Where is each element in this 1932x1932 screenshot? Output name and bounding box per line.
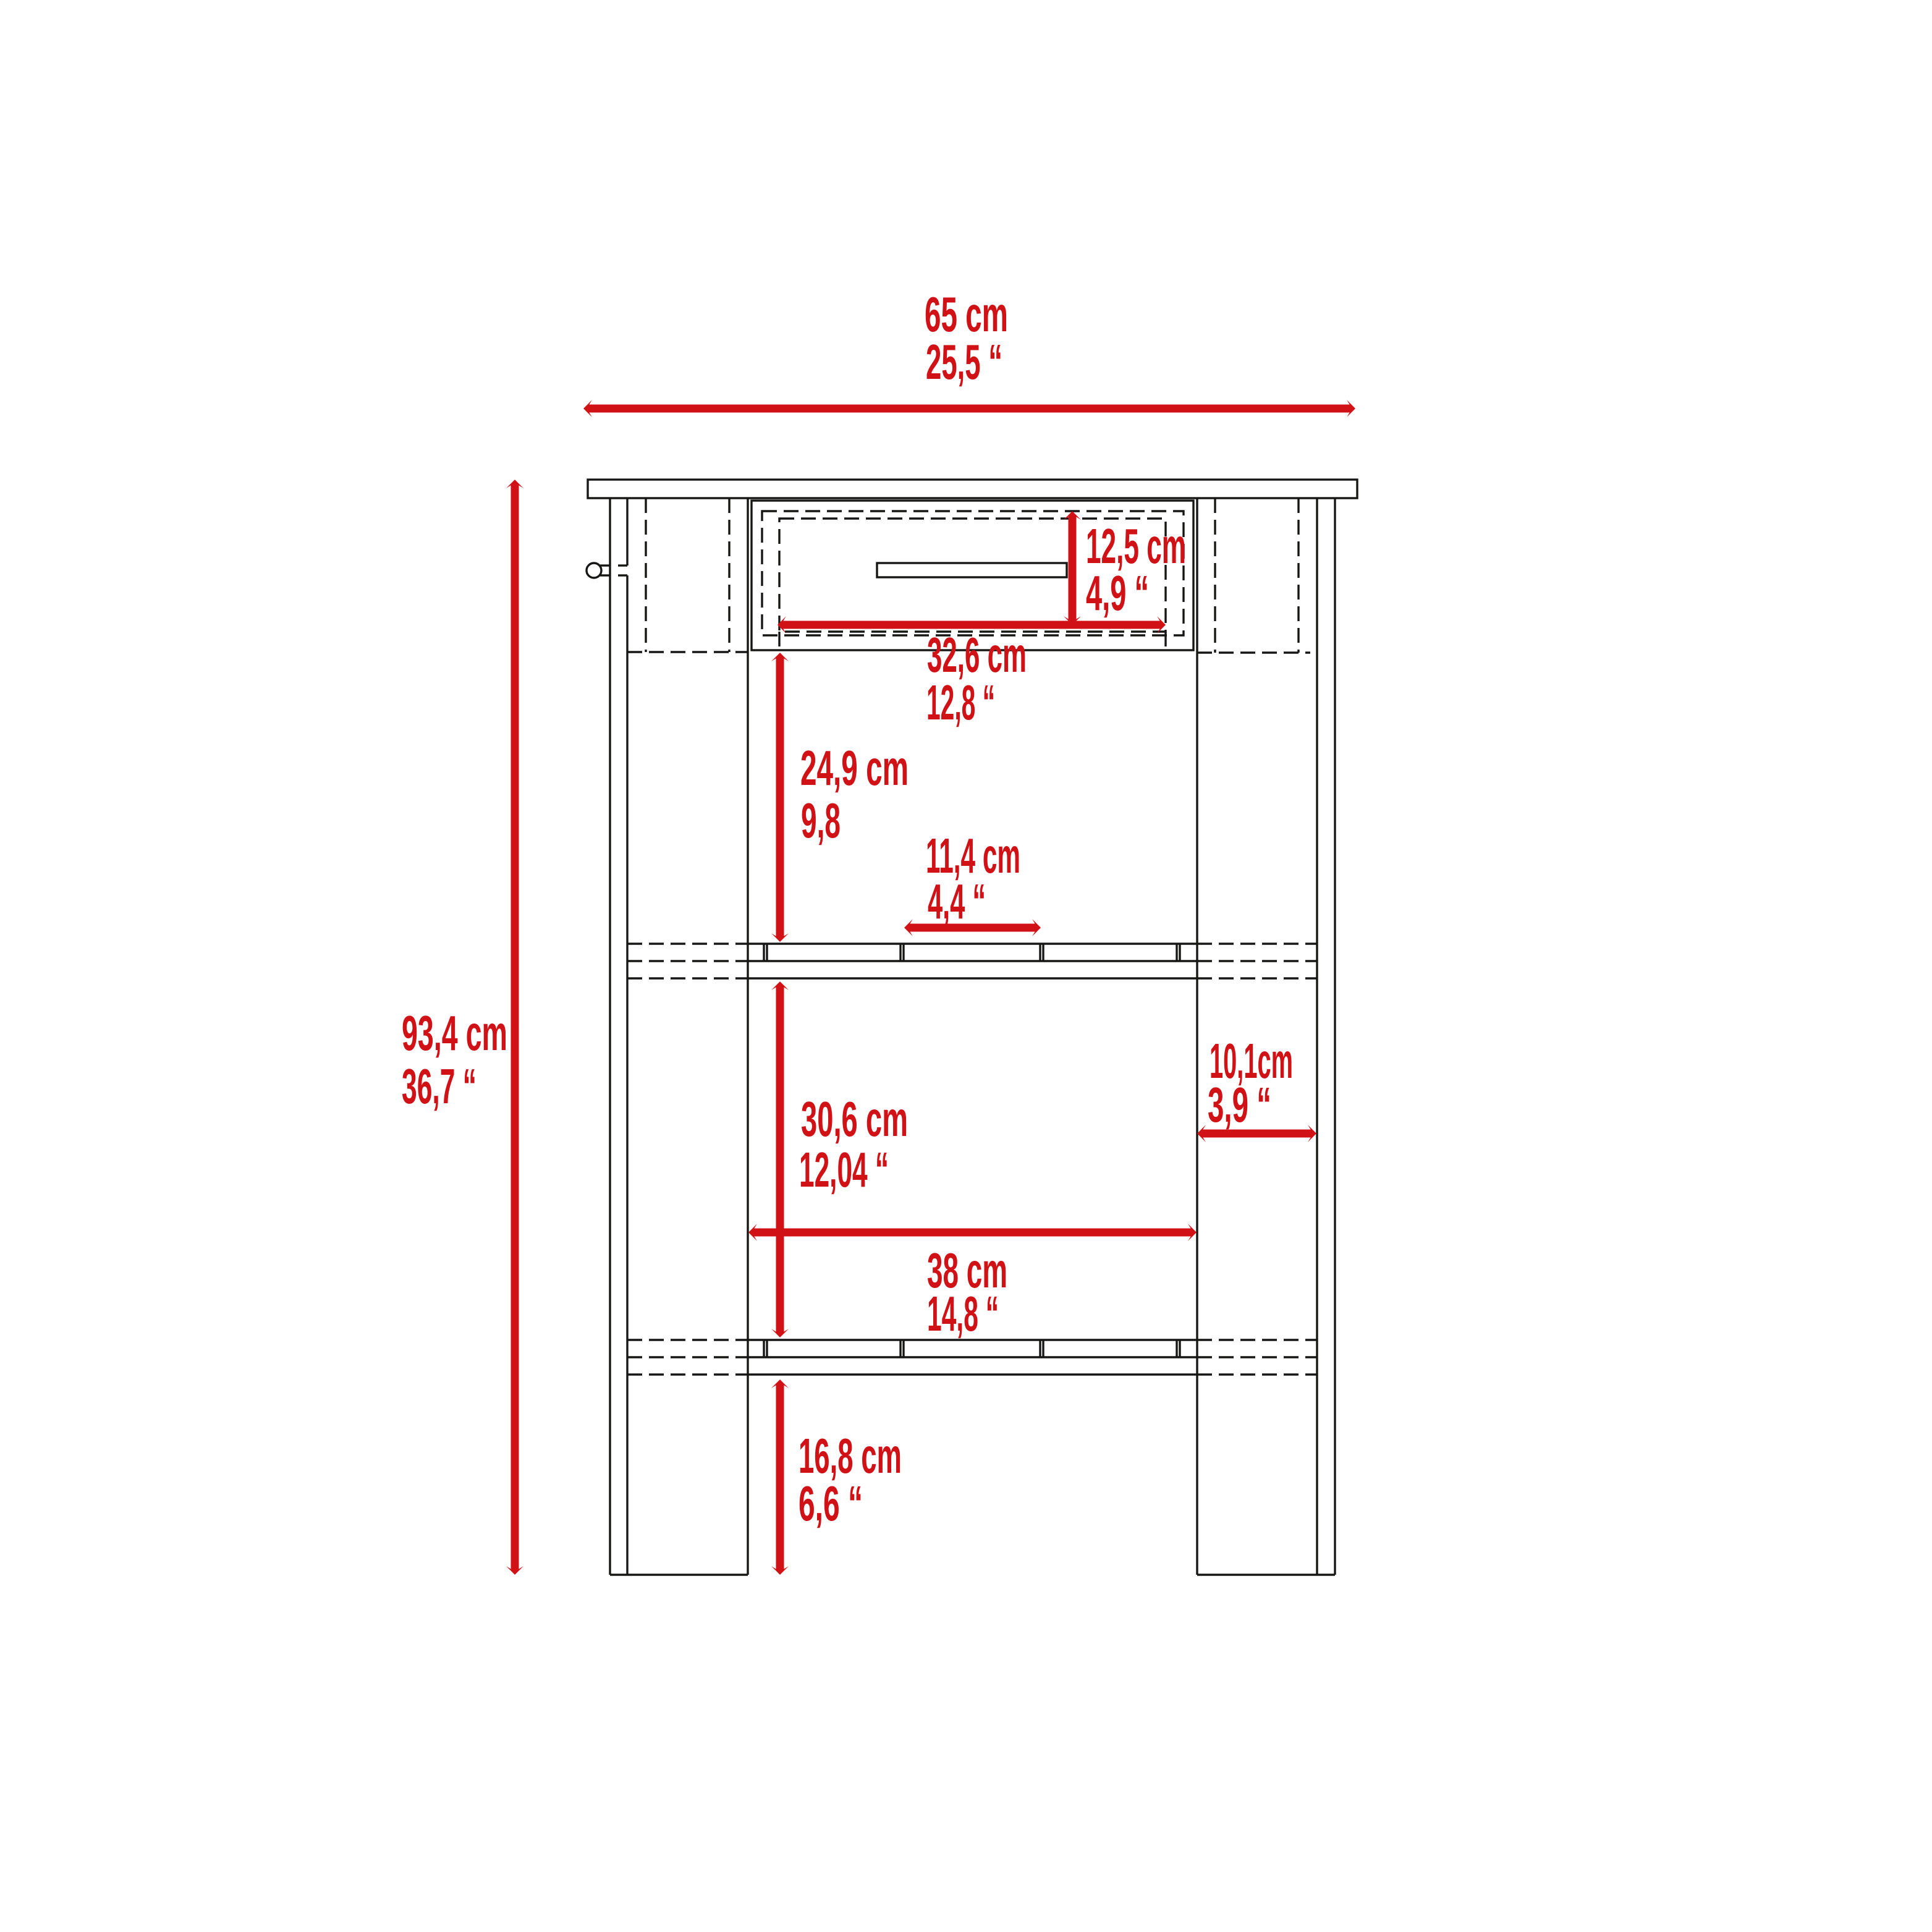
svg-text:25,5 “: 25,5 “ — [926, 334, 1002, 389]
svg-text:24,9 cm: 24,9 cm — [800, 740, 909, 795]
svg-text:12,8 “: 12,8 “ — [926, 675, 995, 730]
svg-text:12,04 “: 12,04 “ — [799, 1142, 889, 1197]
svg-text:30,6 cm: 30,6 cm — [801, 1091, 908, 1146]
svg-text:32,6 cm: 32,6 cm — [927, 627, 1027, 682]
svg-text:4,4 “: 4,4 “ — [928, 874, 986, 929]
svg-text:93,4 cm: 93,4 cm — [402, 1006, 507, 1061]
svg-text:14,8 “: 14,8 “ — [927, 1286, 999, 1341]
svg-text:9,8: 9,8 — [801, 793, 841, 848]
svg-text:36,7 “: 36,7 “ — [402, 1059, 477, 1114]
svg-text:16,8 cm: 16,8 cm — [799, 1428, 902, 1483]
svg-text:65 cm: 65 cm — [925, 287, 1008, 342]
svg-text:4,9 “: 4,9 “ — [1086, 566, 1149, 621]
svg-text:3,9 “: 3,9 “ — [1208, 1077, 1271, 1132]
svg-text:6,6 “: 6,6 “ — [799, 1476, 863, 1531]
